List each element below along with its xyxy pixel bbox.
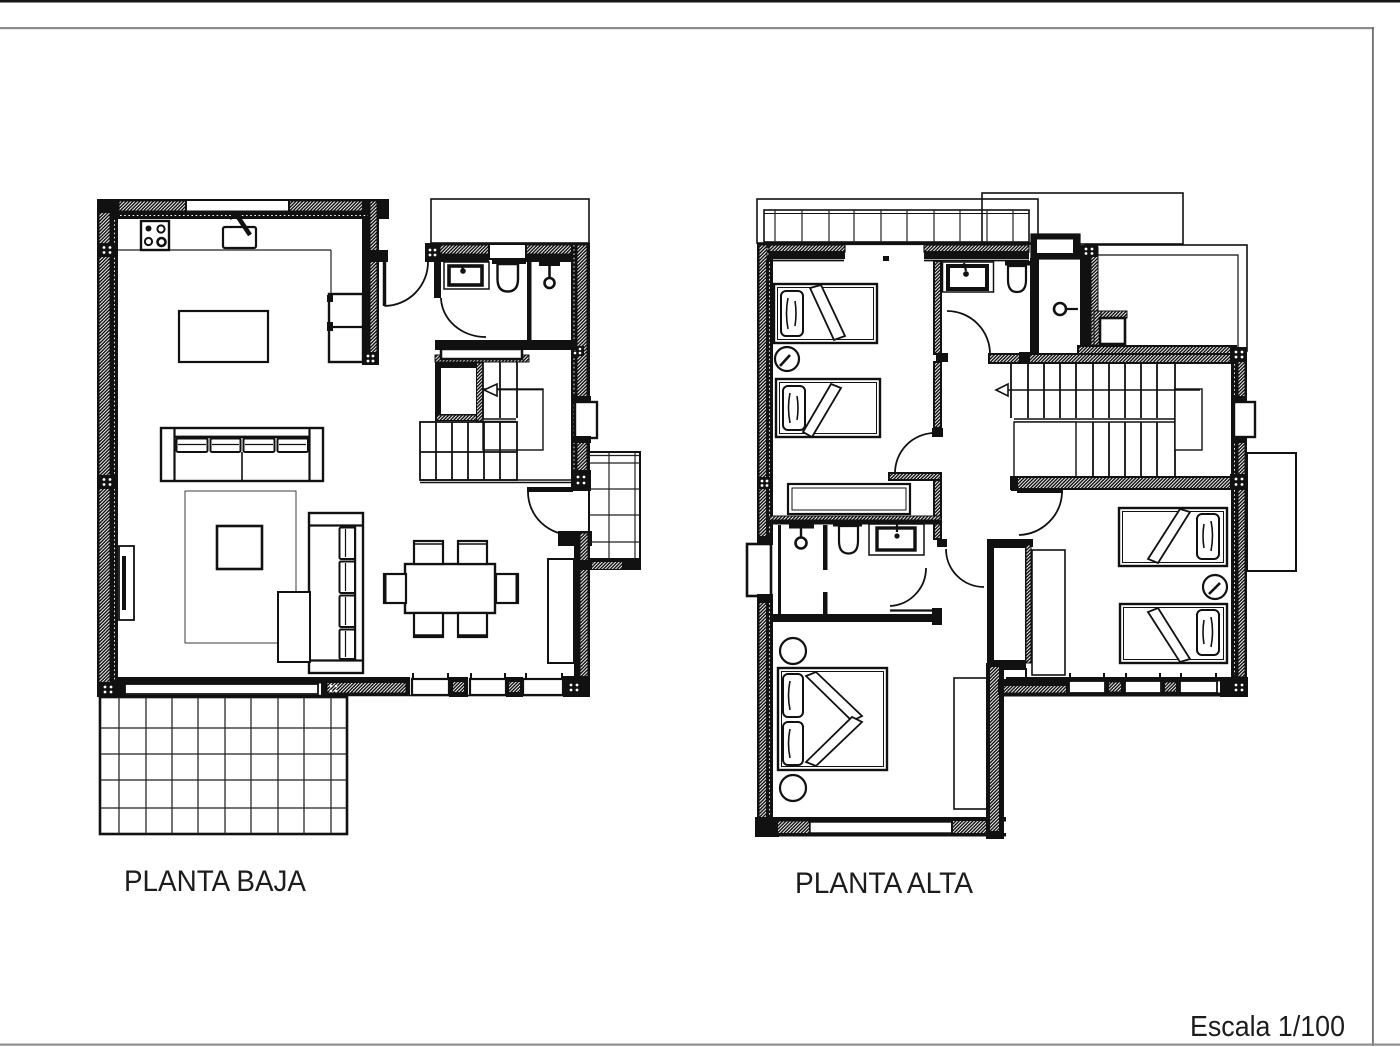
svg-text:Escala 1/100: Escala 1/100 <box>1190 1011 1345 1043</box>
svg-text:PLANTA BAJA: PLANTA BAJA <box>124 865 306 898</box>
svg-text:PLANTA ALTA: PLANTA ALTA <box>795 867 973 900</box>
